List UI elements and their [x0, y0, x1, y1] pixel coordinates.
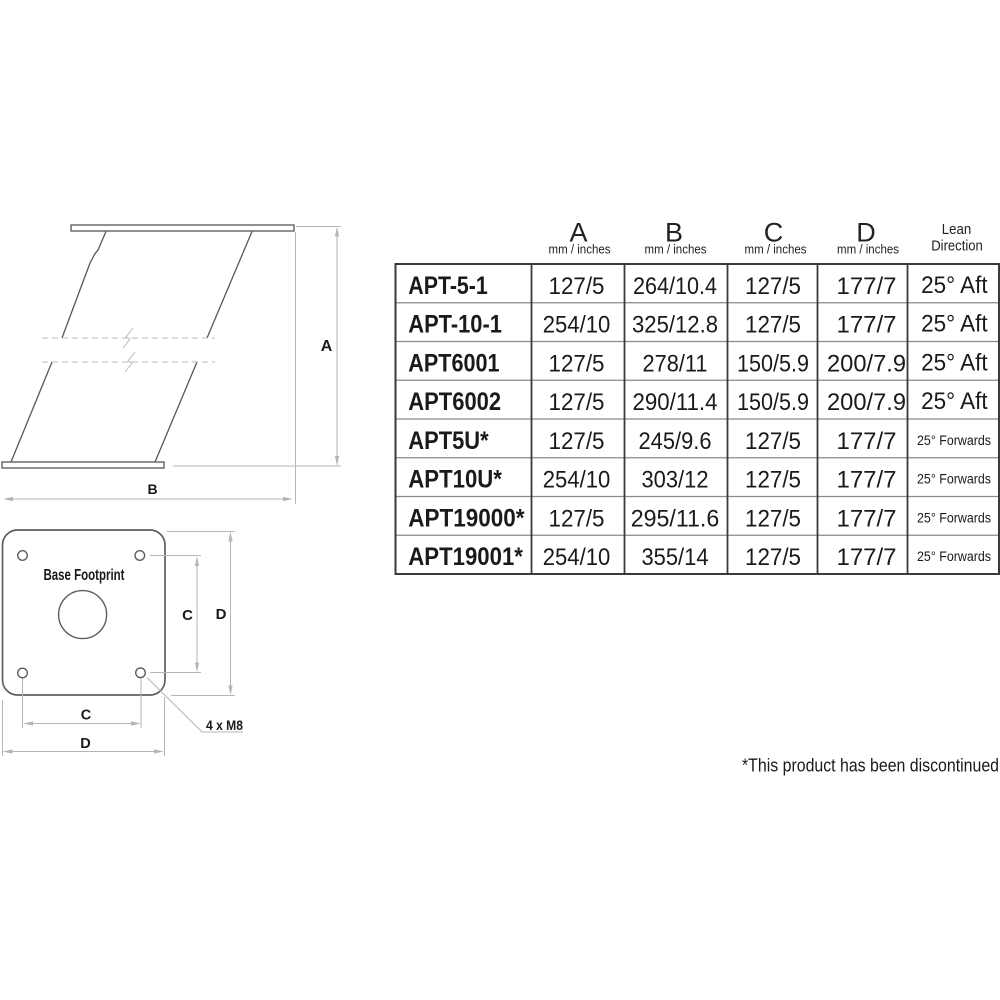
svg-text:127/5: 127/5	[745, 467, 801, 494]
svg-text:*This product has been discont: *This product has been discontinued	[742, 756, 999, 776]
svg-text:Base Footprint: Base Footprint	[44, 567, 125, 584]
svg-text:150/5.9: 150/5.9	[737, 389, 809, 416]
svg-text:C: C	[81, 708, 92, 724]
svg-text:25° Forwards: 25° Forwards	[917, 510, 991, 525]
svg-text:25° Aft: 25° Aft	[921, 388, 988, 415]
svg-text:mm / inches: mm / inches	[549, 242, 611, 257]
svg-text:127/5: 127/5	[549, 350, 605, 377]
svg-text:A: A	[321, 338, 333, 355]
svg-text:25° Forwards: 25° Forwards	[917, 433, 991, 448]
svg-text:290/11.4: 290/11.4	[633, 389, 718, 416]
svg-text:127/5: 127/5	[745, 505, 801, 532]
svg-text:mm / inches: mm / inches	[745, 242, 807, 257]
svg-text:254/10: 254/10	[543, 312, 611, 339]
svg-text:127/5: 127/5	[745, 428, 801, 455]
svg-text:127/5: 127/5	[549, 273, 605, 300]
svg-text:APT5U*: APT5U*	[408, 427, 489, 455]
svg-text:177/7: 177/7	[837, 273, 897, 300]
svg-text:APT19000*: APT19000*	[408, 504, 524, 532]
svg-text:APT-10-1: APT-10-1	[408, 311, 502, 339]
svg-text:200/7.9: 200/7.9	[827, 389, 906, 416]
svg-text:177/7: 177/7	[837, 467, 897, 494]
svg-text:177/7: 177/7	[837, 505, 897, 532]
svg-text:APT6001: APT6001	[408, 349, 499, 377]
svg-text:150/5.9: 150/5.9	[737, 350, 809, 377]
svg-text:245/9.6: 245/9.6	[639, 428, 712, 455]
svg-text:127/5: 127/5	[549, 389, 605, 416]
svg-text:127/5: 127/5	[549, 505, 605, 532]
svg-text:254/10: 254/10	[543, 544, 611, 571]
svg-text:127/5: 127/5	[745, 544, 801, 571]
svg-text:APT19001*: APT19001*	[408, 543, 523, 571]
svg-text:177/7: 177/7	[837, 544, 897, 571]
svg-text:25° Forwards: 25° Forwards	[917, 549, 991, 564]
svg-text:200/7.9: 200/7.9	[827, 350, 906, 377]
svg-text:Direction: Direction	[931, 238, 983, 255]
svg-text:325/12.8: 325/12.8	[632, 312, 718, 339]
svg-text:264/10.4: 264/10.4	[633, 273, 717, 300]
svg-text:Lean: Lean	[942, 221, 972, 238]
svg-text:303/12: 303/12	[642, 467, 709, 494]
svg-text:B: B	[147, 481, 157, 497]
svg-text:D: D	[80, 736, 90, 752]
svg-text:mm / inches: mm / inches	[837, 242, 899, 257]
svg-text:25° Aft: 25° Aft	[921, 311, 988, 338]
svg-text:25° Aft: 25° Aft	[921, 350, 988, 377]
svg-text:177/7: 177/7	[837, 428, 897, 455]
svg-text:254/10: 254/10	[543, 467, 611, 494]
svg-text:127/5: 127/5	[745, 273, 801, 300]
svg-text:25° Aft: 25° Aft	[921, 272, 988, 299]
svg-text:4 x M8: 4 x M8	[206, 717, 243, 733]
svg-text:D: D	[216, 606, 227, 623]
svg-text:APT6002: APT6002	[408, 388, 501, 416]
svg-text:APT-5-1: APT-5-1	[408, 272, 488, 300]
svg-text:C: C	[182, 607, 193, 624]
svg-text:APT10U*: APT10U*	[408, 466, 502, 494]
svg-text:25° Forwards: 25° Forwards	[917, 472, 991, 487]
svg-text:295/11.6: 295/11.6	[631, 505, 720, 532]
svg-text:355/14: 355/14	[642, 544, 709, 571]
svg-text:127/5: 127/5	[745, 312, 801, 339]
svg-text:177/7: 177/7	[837, 312, 897, 339]
svg-text:127/5: 127/5	[549, 428, 605, 455]
svg-text:278/11: 278/11	[643, 350, 708, 377]
svg-text:mm / inches: mm / inches	[645, 242, 707, 257]
